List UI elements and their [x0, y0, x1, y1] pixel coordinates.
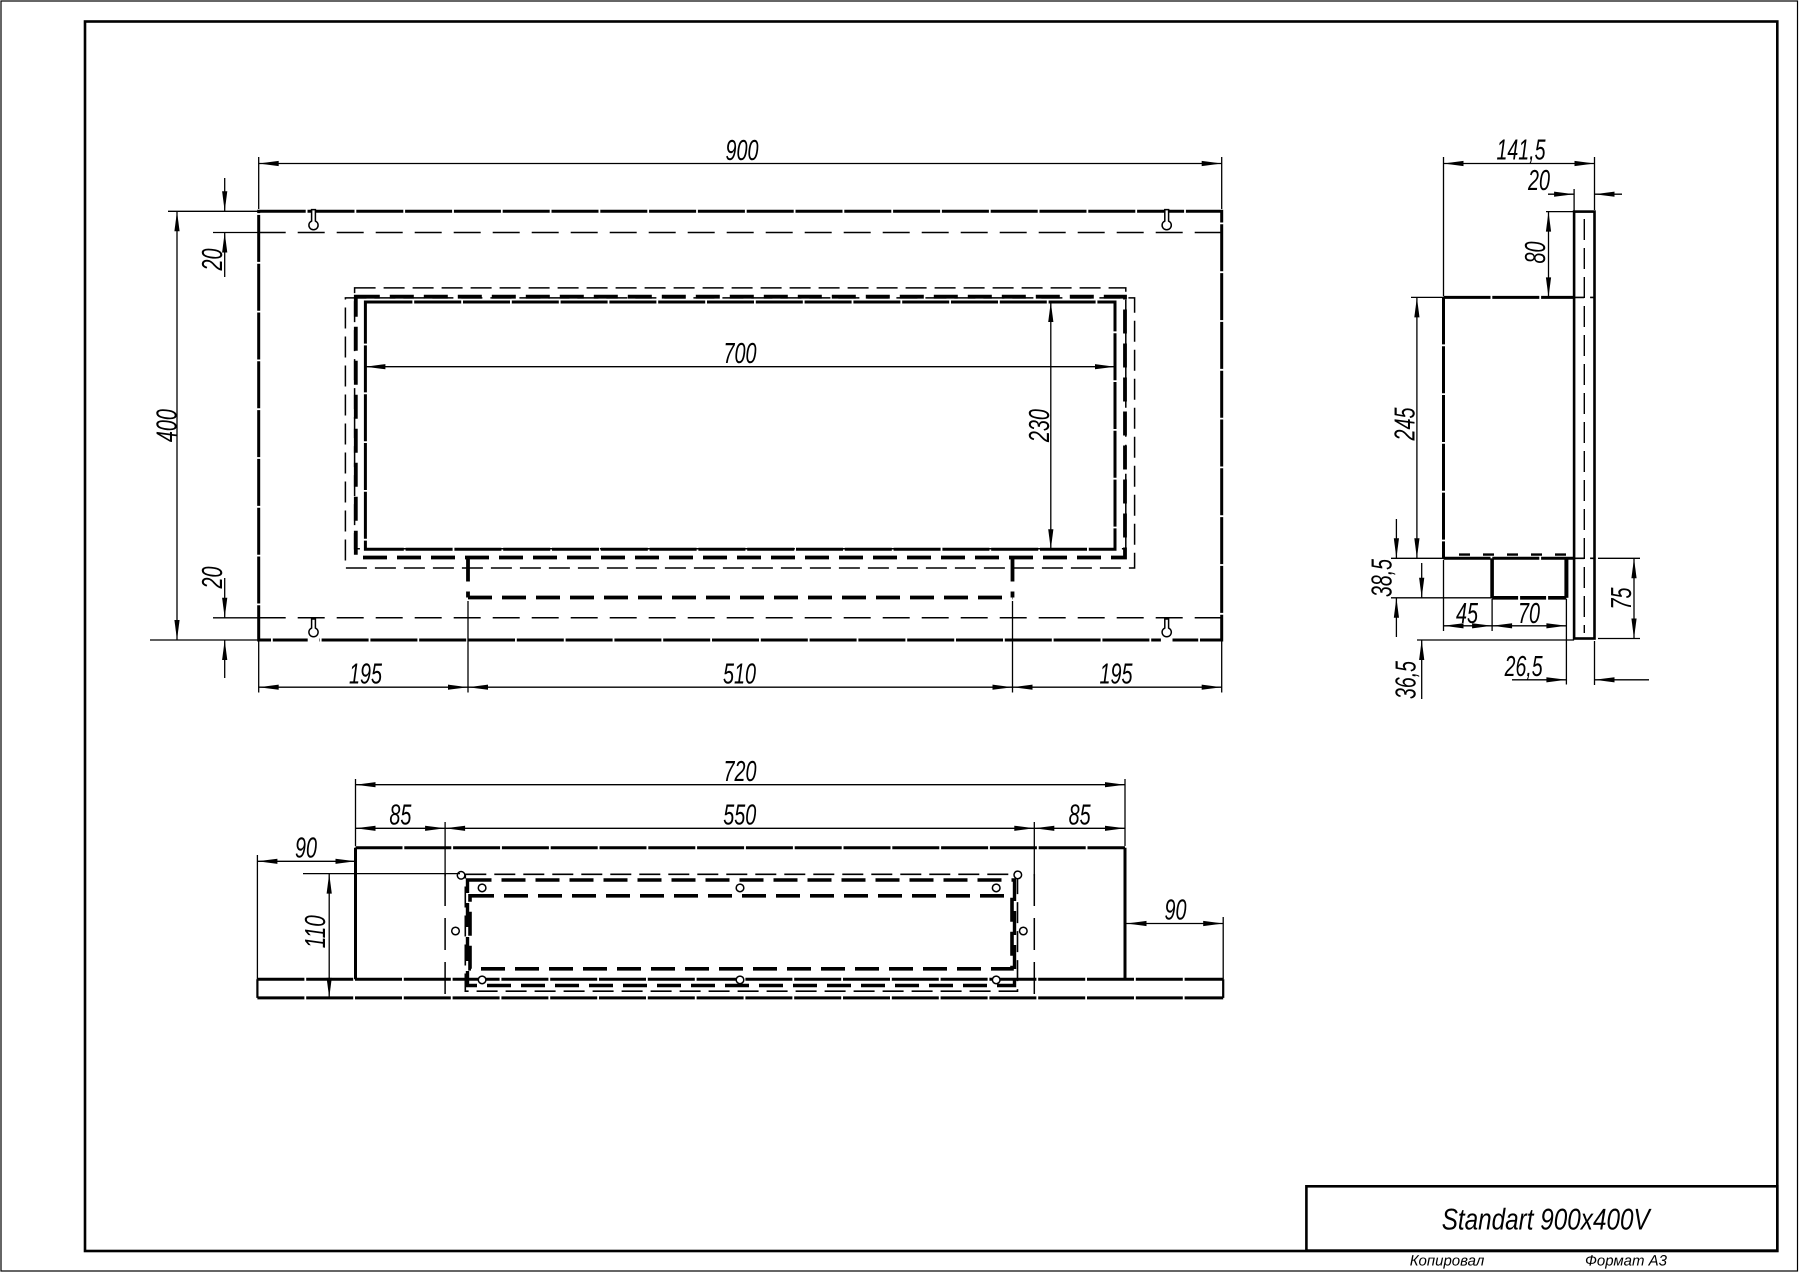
svg-text:75: 75 — [1606, 587, 1638, 610]
svg-text:80: 80 — [1520, 242, 1552, 264]
svg-text:36,5: 36,5 — [1391, 660, 1423, 699]
svg-text:700: 700 — [724, 338, 757, 370]
svg-text:38,5: 38,5 — [1367, 558, 1399, 597]
svg-text:45: 45 — [1456, 598, 1479, 630]
svg-text:20: 20 — [197, 249, 229, 272]
svg-text:400: 400 — [152, 409, 184, 442]
svg-text:550: 550 — [723, 800, 756, 832]
svg-text:90: 90 — [295, 833, 317, 865]
svg-text:510: 510 — [723, 659, 756, 691]
svg-text:Формат А3: Формат А3 — [1585, 1253, 1668, 1270]
svg-text:85: 85 — [389, 800, 412, 832]
svg-text:Копировал: Копировал — [1410, 1253, 1485, 1270]
svg-text:110: 110 — [300, 915, 332, 948]
svg-text:70: 70 — [1518, 598, 1540, 630]
svg-text:720: 720 — [724, 756, 757, 788]
svg-text:141,5: 141,5 — [1497, 135, 1547, 167]
svg-text:230: 230 — [1024, 409, 1056, 443]
svg-text:195: 195 — [1100, 659, 1134, 691]
svg-text:20: 20 — [197, 567, 229, 590]
svg-text:85: 85 — [1069, 800, 1092, 832]
svg-text:900: 900 — [726, 135, 759, 167]
svg-text:Standart 900x400V: Standart 900x400V — [1442, 1204, 1652, 1237]
svg-text:20: 20 — [1527, 165, 1550, 197]
svg-text:26,5: 26,5 — [1504, 651, 1543, 683]
svg-text:90: 90 — [1165, 895, 1187, 927]
svg-text:195: 195 — [349, 659, 383, 691]
svg-text:245: 245 — [1390, 407, 1422, 441]
